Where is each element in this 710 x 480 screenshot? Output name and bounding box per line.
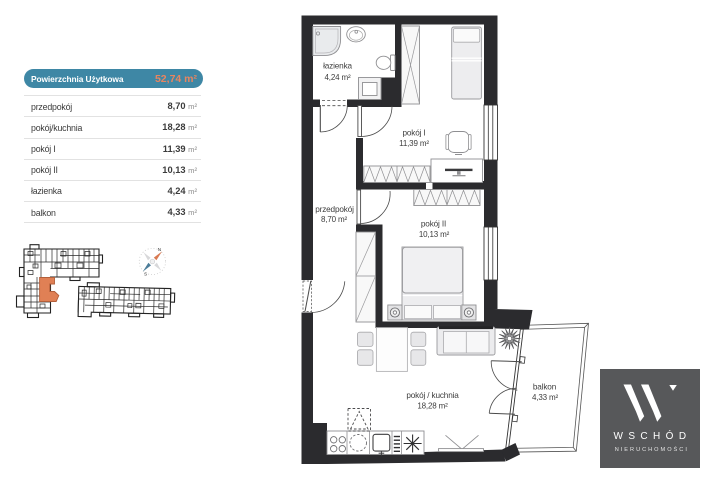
svg-text:4,24 m²: 4,24 m²	[324, 73, 351, 82]
svg-text:pokój / kuchnia: pokój / kuchnia	[406, 391, 459, 400]
svg-text:łazienka: łazienka	[323, 62, 352, 71]
svg-text:pokój I: pokój I	[402, 129, 425, 138]
svg-text:S: S	[144, 272, 147, 278]
svg-text:przedpokój: przedpokój	[315, 205, 354, 214]
svg-text:10,13 m²: 10,13 m²	[419, 230, 450, 239]
svg-text:N: N	[158, 247, 162, 253]
svg-text:pokój II: pokój II	[421, 220, 446, 229]
svg-text:11,39 m²: 11,39 m²	[399, 139, 429, 148]
svg-text:8,70 m²: 8,70 m²	[321, 215, 348, 224]
svg-text:18,28 m²: 18,28 m²	[417, 402, 448, 411]
svg-text:balkon: balkon	[533, 383, 557, 392]
svg-text:4,33 m²: 4,33 m²	[532, 393, 559, 402]
